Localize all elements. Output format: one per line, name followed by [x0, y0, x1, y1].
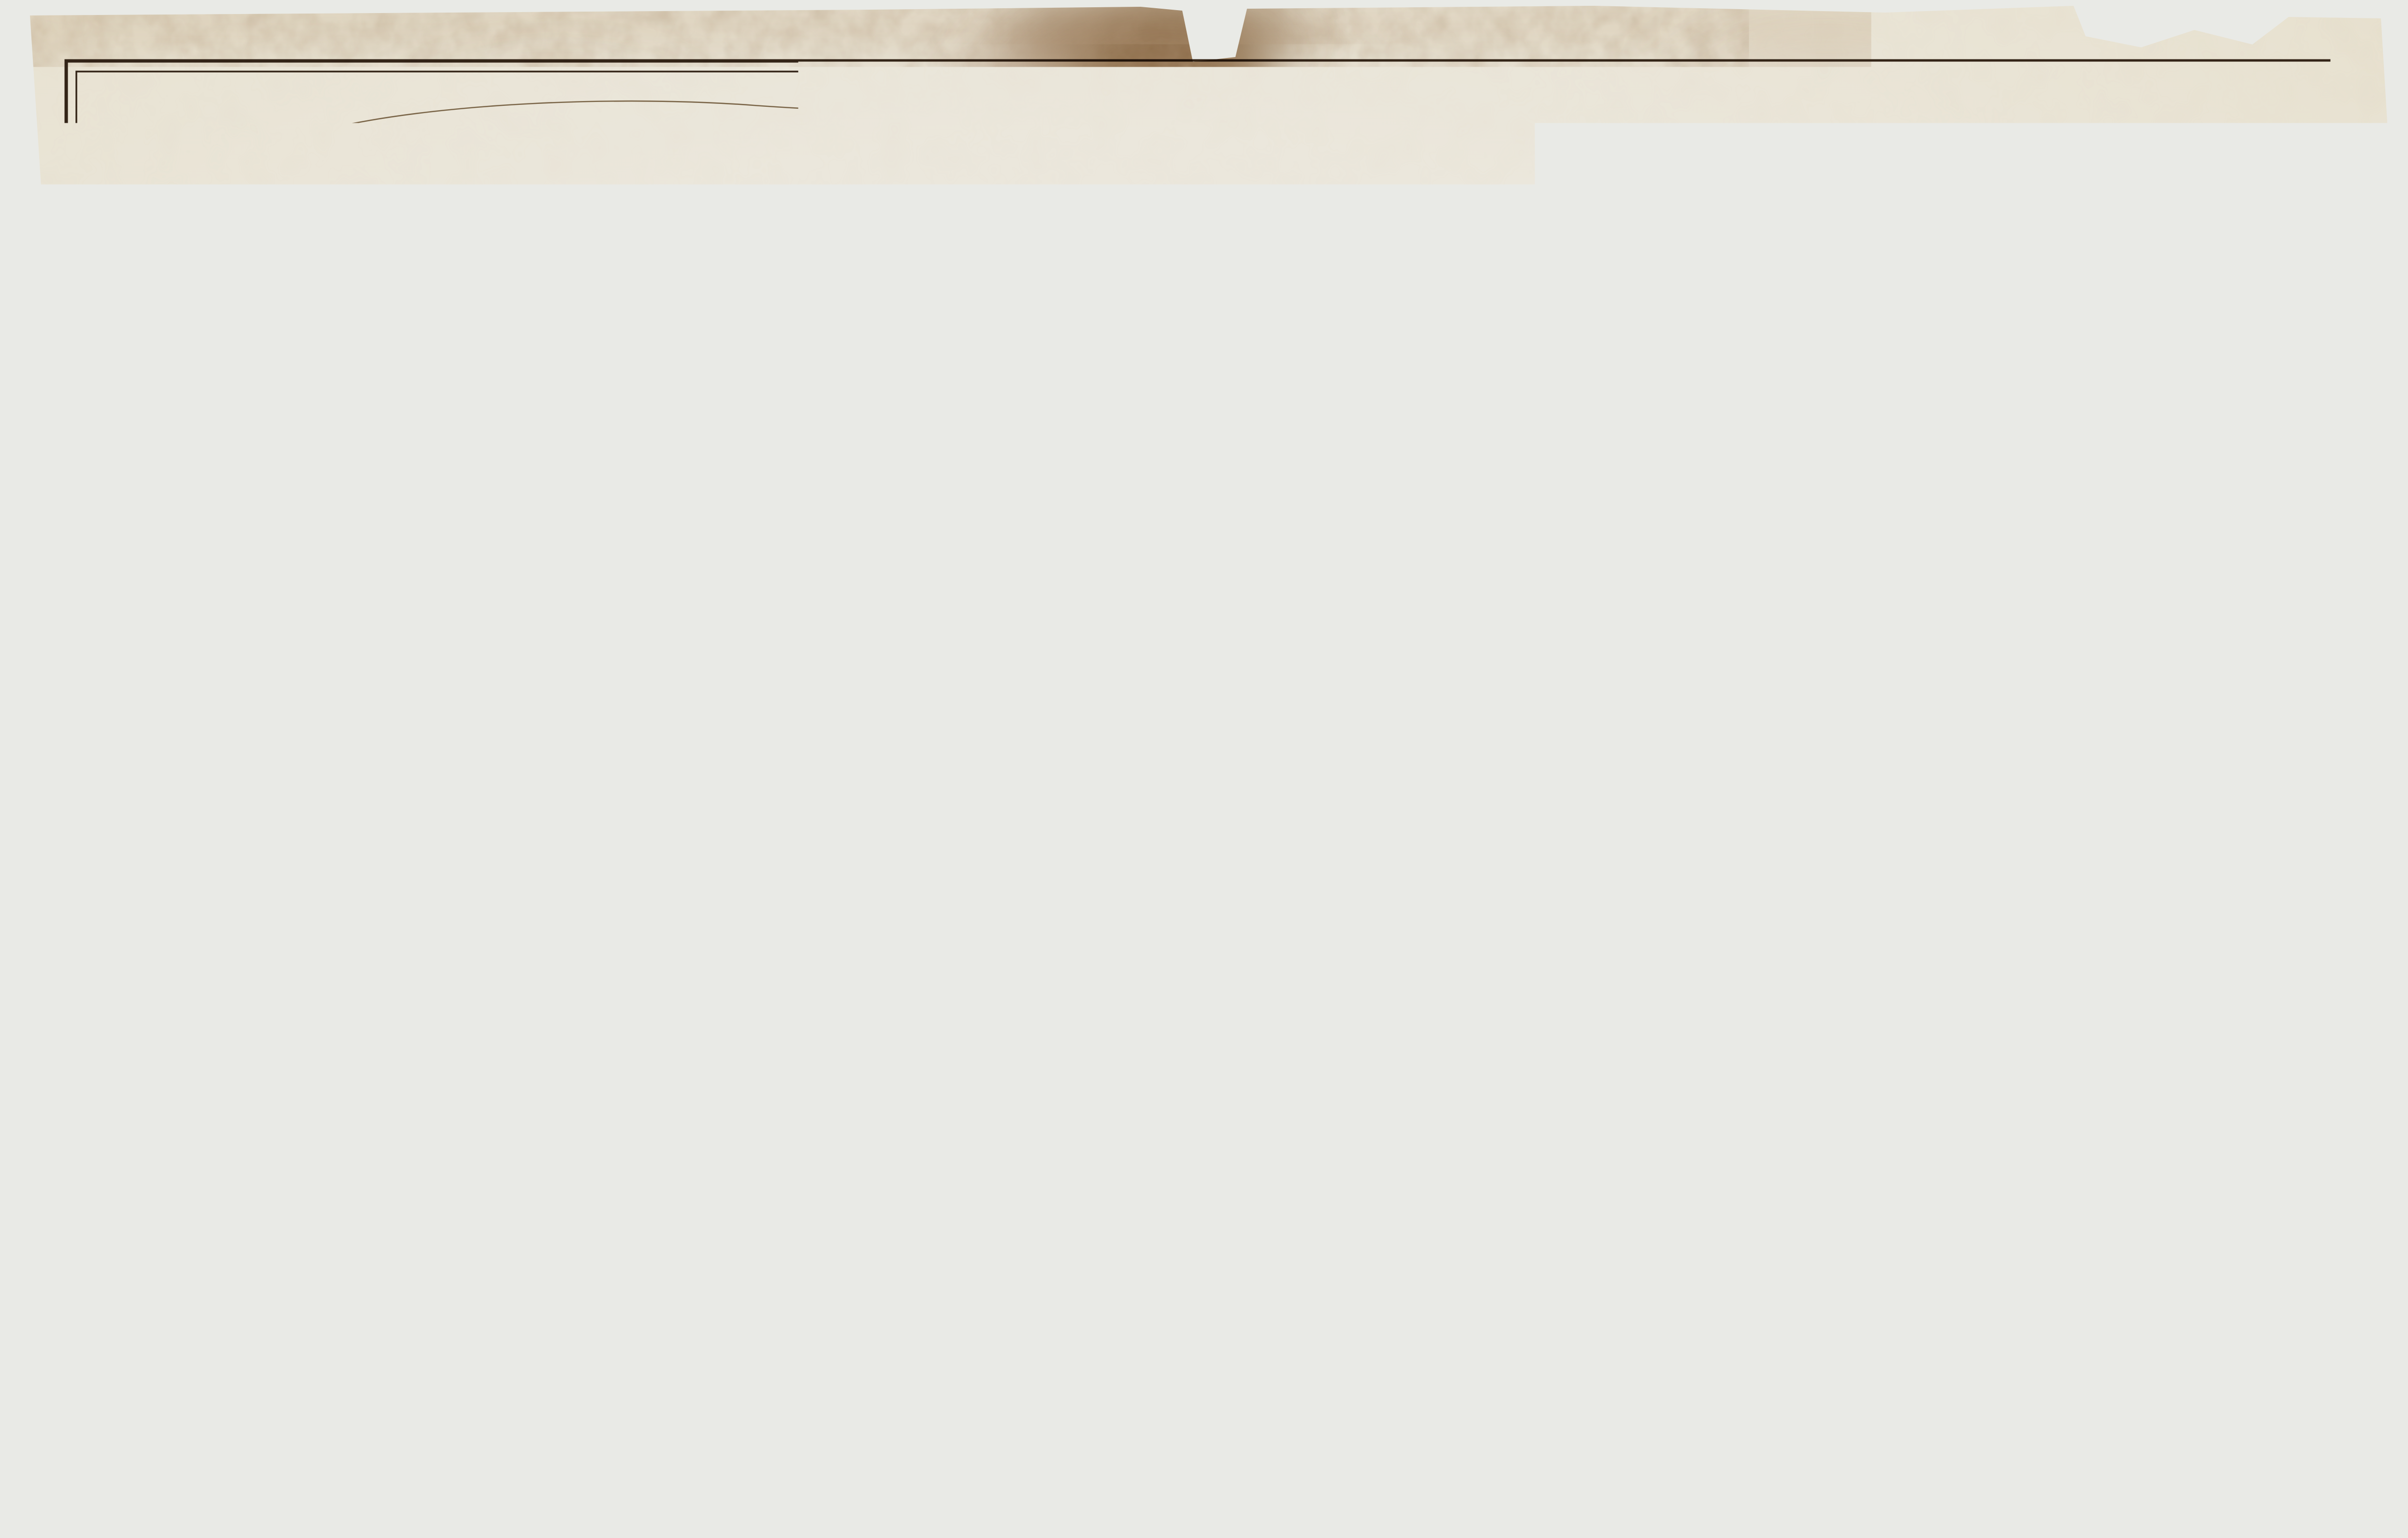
- svg-text:n° 88. 9. 3. 8.: n° 88. 9. 3. 8.: [2077, 1025, 2182, 1049]
- svg-text:H: H: [1724, 752, 1742, 781]
- svg-text:III: III: [1610, 685, 1634, 710]
- svg-text:VI: VI: [995, 786, 1019, 811]
- svg-text:VIA: VIA: [1277, 699, 1297, 735]
- svg-text:VIA: VIA: [1472, 734, 1512, 750]
- svg-text:GRORIANA: GRORIANA: [484, 151, 595, 170]
- svg-text:La posseßione del n° VIII è di: La posseßione del n° VIII è di tor.: [1545, 1152, 1787, 1176]
- svg-text:V: V: [1113, 683, 1129, 708]
- svg-text:VIA: VIA: [1333, 751, 1378, 770]
- svg-text:n° 65. 4. 6. 0.: n° 65. 4. 6. 0.: [2079, 1169, 2184, 1193]
- svg-text:n° 53. 5. 2. 5.: n° 53. 5. 2. 5.: [2078, 1082, 2183, 1106]
- svg-text:tro: tro: [2305, 1469, 2315, 1480]
- svg-text:C: C: [1846, 688, 1862, 713]
- svg-text:Lapossessione di n°I. comprese: Lapossessione di n°I. comprese le due pe…: [320, 170, 701, 188]
- svg-text:XX: XX: [1096, 543, 1138, 574]
- svg-text:X: X: [144, 832, 160, 856]
- svg-text:64. 4. 8. 0.: 64. 4. 8. 0.: [740, 165, 826, 188]
- svg-text:Sig.ᵃ Co.ᶦᶦ Bacineui: Sig.ᵃ Co.ᶦᶦ Bacineui: [1780, 644, 1929, 666]
- svg-text:I: I: [1695, 614, 1702, 639]
- svg-text:Guiccioli: Guiccioli: [2126, 552, 2198, 574]
- svg-text:n° 82. 1. 7. 3.: n° 82. 1. 7. 3.: [2080, 1197, 2185, 1221]
- svg-text:IX: IX: [81, 687, 106, 711]
- svg-text:n° 70. 3. 0. 8.: n° 70. 3. 0. 8.: [2079, 1141, 2184, 1165]
- svg-text:II: II: [1441, 750, 1457, 774]
- svg-text:A: A: [1710, 695, 1732, 728]
- svg-text:L: L: [750, 928, 767, 958]
- svg-text:n° 25. 6. 8. 6.: n° 25. 6. 8. 6.: [2077, 1054, 2182, 1078]
- svg-text:BENI DELL ABBAZIA DI S.VITALE: BENI DELL ABBAZIA DI S.VITALE NELLA BONI…: [334, 122, 804, 141]
- svg-text:49. 5. 6. 1.: 49. 5. 6. 1.: [740, 223, 826, 246]
- svg-text:8. 6. 6. 8.: 8. 6. 6. 8.: [752, 194, 828, 217]
- svg-text:Sig.ᵃ Co.ᵗᵃ Capra: Sig.ᵃ Co.ᵗᵃ Capra: [951, 486, 1086, 508]
- svg-text:La posseßione del n° X. è di t: La posseßione del n° X. è di tor.°: [1546, 1209, 1783, 1233]
- svg-text:Sig.ᵉ: Sig.ᵉ: [2045, 554, 2080, 576]
- svg-text:22. 8. 2. 1.: 22. 8. 2. 1.: [2093, 1111, 2176, 1134]
- svg-text:IV: IV: [1058, 819, 1082, 843]
- svg-text:La possessione del n° VI è di: La possessione del n° VI è di tor.°: [1544, 1093, 1786, 1117]
- svg-text:VIII: VIII: [285, 634, 325, 658]
- svg-text:La posseßione del n° IX. è di: La posseßione del n° IX. è di tor.°: [1546, 1180, 1788, 1204]
- svg-text:Giuseppe Cap.° Guarini Perito: Giuseppe Cap.° Guarini Perito del nuouo …: [2019, 1454, 2294, 1470]
- svg-text:VII: VII: [1039, 711, 1072, 736]
